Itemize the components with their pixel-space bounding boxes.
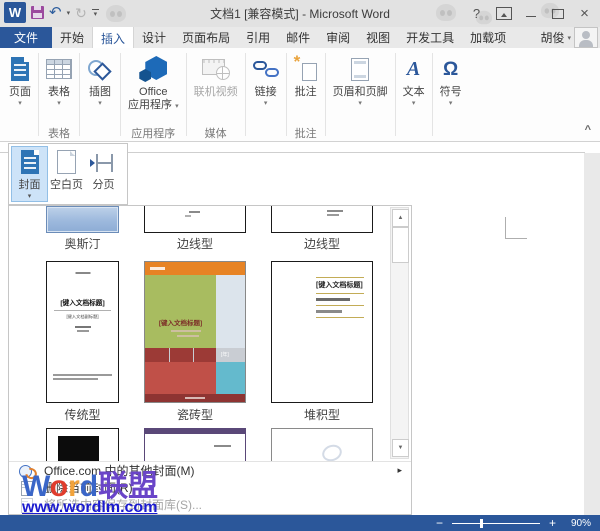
word-window: 文档1 [兼容模式] - Microsoft Word W ↶ ▾ ↻ ▾ ? … [0, 0, 600, 531]
pages-flyout: 封面 ▾ 空白页 分页 [8, 143, 128, 205]
avatar[interactable] [574, 27, 598, 48]
zoom-in-icon[interactable]: + [549, 517, 556, 529]
group-links: 链接 ▾ [246, 48, 286, 141]
table-button[interactable]: 表格 ▾ [42, 51, 76, 109]
menu-item-remove-cover[interactable]: 删除当前封面(R) [9, 479, 411, 496]
group-label-media: 媒体 [205, 125, 227, 141]
user-caret-icon[interactable]: ▾ [567, 34, 571, 42]
links-button[interactable]: 链接 ▾ [249, 51, 283, 109]
menu-item-save-selection: 将所选内容保存到封面库(S)... [9, 496, 411, 513]
status-bar: − + 90% [0, 515, 600, 531]
chevron-down-icon: ▾ [57, 100, 61, 107]
chevron-down-icon: ▾ [412, 100, 416, 107]
zoom-out-icon[interactable]: − [436, 517, 443, 529]
comment-button[interactable]: 批注 [290, 51, 322, 101]
page-break-button[interactable]: 分页 [85, 146, 122, 202]
tab-insert[interactable]: 插入 [92, 27, 134, 49]
group-label-comments: 批注 [295, 125, 317, 141]
qat-customize-icon[interactable]: ▾ [92, 9, 99, 17]
group-symbols: Ω 符号 ▾ [433, 48, 469, 141]
chevron-down-icon: ▾ [264, 100, 268, 107]
group-label-apps: 应用程序 [131, 125, 175, 141]
group-media: 联机视频 媒体 [187, 48, 245, 141]
cover-gallery-list: 奥斯汀 边线型 边线型 [键入文档标题] [键入文档副标题] [键入文档标题] … [9, 206, 411, 461]
account-area: 胡俊 ▾ [540, 27, 600, 48]
menu-item-more-covers[interactable]: Office.com 中的其他封面(M) ▸ [9, 462, 411, 479]
shapes-icon [87, 58, 113, 80]
cover-thumbnail-stacked[interactable]: [键入文档标题] [271, 261, 373, 403]
header-footer-icon [351, 58, 369, 81]
omega-icon: Ω [443, 63, 458, 76]
help-icon[interactable]: ? [463, 3, 490, 25]
cover-gallery-dropdown: 奥斯汀 边线型 边线型 [键入文档标题] [键入文档副标题] [键入文档标题] … [8, 205, 412, 515]
header-footer-button[interactable]: 页眉和页脚 ▾ [329, 51, 392, 109]
minimize-icon[interactable] [517, 3, 544, 25]
chevron-down-icon: ▾ [98, 100, 102, 107]
cover-thumbnail-sideline-2[interactable] [271, 206, 373, 233]
online-video-button[interactable]: 联机视频 [190, 51, 242, 101]
group-header-footer: 页眉和页脚 ▾ [326, 48, 395, 141]
quick-access-toolbar: W ↶ ▾ ↻ ▾ [4, 2, 99, 23]
close-icon[interactable]: × [571, 3, 598, 25]
tab-page-layout[interactable]: 页面布局 [174, 27, 238, 48]
blank-page-button[interactable]: 空白页 [48, 146, 85, 202]
pages-button[interactable]: 页面 ▾ [5, 51, 35, 109]
chevron-down-icon: ▾ [175, 103, 179, 110]
page-edge-shade [584, 153, 600, 515]
text-button[interactable]: A 文本 ▾ [399, 51, 429, 109]
ribbon: 页面 ▾ 表格 ▾ 表格 插图 ▾ [0, 48, 600, 142]
zoom-slider[interactable] [452, 523, 540, 524]
chevron-down-icon: ▾ [449, 100, 453, 107]
save-icon[interactable] [31, 6, 44, 19]
chevron-down-icon: ▾ [18, 100, 22, 107]
group-illustrations: 插图 ▾ [80, 48, 120, 141]
tab-developer[interactable]: 开发工具 [398, 27, 462, 48]
cover-label: 瓷砖型 [129, 406, 261, 423]
tab-mailings[interactable]: 邮件 [278, 27, 318, 48]
tab-references[interactable]: 引用 [238, 27, 278, 48]
group-pages: 页面 ▾ [2, 48, 38, 141]
cover-thumbnail-traditional[interactable]: [键入文档标题] [键入文档副标题] [46, 261, 119, 403]
cover-thumbnail-austin[interactable] [46, 206, 119, 233]
cube-icon [139, 56, 167, 82]
tab-addins[interactable]: 加载项 [462, 27, 514, 48]
group-comments: 批注 批注 [287, 48, 325, 141]
cover-label: 边线型 [129, 235, 261, 252]
group-table: 表格 ▾ 表格 [39, 48, 79, 141]
symbol-button[interactable]: Ω 符号 ▾ [436, 51, 466, 109]
undo-caret-icon[interactable]: ▾ [67, 9, 71, 17]
undo-icon[interactable]: ↶ [49, 5, 62, 20]
office-com-icon [19, 464, 35, 478]
tab-file[interactable]: 文件 [0, 27, 52, 48]
chain-icon [253, 59, 279, 79]
ribbon-display-options-icon[interactable] [490, 3, 517, 25]
remove-cover-icon [19, 481, 35, 495]
scrollbar-thumb[interactable] [392, 227, 409, 263]
tab-view[interactable]: 视图 [358, 27, 398, 48]
new-comment-icon [294, 57, 318, 81]
tab-home[interactable]: 开始 [52, 27, 92, 48]
office-apps-button[interactable]: Office 应用程序 ▾ [124, 51, 183, 114]
word-app-icon[interactable]: W [4, 2, 26, 23]
redo-icon: ↻ [75, 6, 87, 20]
table-icon [46, 59, 72, 79]
save-selection-icon [19, 498, 35, 512]
zoom-level[interactable]: 90% [565, 518, 591, 529]
group-label-table: 表格 [48, 125, 70, 141]
text-a-icon: A [407, 63, 420, 76]
cover-thumbnail-row3-1[interactable] [46, 428, 119, 461]
text-boundary-corner [505, 217, 527, 239]
cover-page-icon [21, 150, 39, 174]
page-break-icon [92, 152, 116, 174]
gallery-scrollbar[interactable]: ▲ ▼ [390, 207, 409, 459]
cover-label: 传统型 [29, 406, 136, 423]
cover-thumbnail-sideline-1[interactable] [144, 206, 246, 233]
cover-thumbnail-row3-2[interactable] [144, 428, 246, 461]
chevron-down-icon: ▾ [28, 194, 32, 200]
restore-icon[interactable] [544, 3, 571, 25]
ribbon-tab-row: 文件 开始 插入 设计 页面布局 引用 邮件 审阅 视图 开发工具 加载项 胡俊… [0, 27, 600, 49]
page-icon [11, 57, 29, 81]
window-controls: ? × [463, 0, 598, 27]
title-bar: 文档1 [兼容模式] - Microsoft Word W ↶ ▾ ↻ ▾ ? … [0, 0, 600, 27]
chevron-down-icon: ▾ [358, 100, 362, 107]
submenu-arrow-icon: ▸ [397, 465, 402, 476]
zoom-slider-handle[interactable] [480, 519, 483, 528]
user-name[interactable]: 胡俊 [540, 29, 564, 46]
cover-thumbnail-row3-3[interactable] [271, 428, 373, 461]
tab-review[interactable]: 审阅 [318, 27, 358, 48]
cover-label: 堆积型 [256, 406, 388, 423]
video-icon [202, 58, 230, 80]
gallery-menu: Office.com 中的其他封面(M) ▸ 删除当前封面(R) 将所选内容保存… [9, 461, 411, 513]
illustrations-button[interactable]: 插图 ▾ [83, 51, 117, 109]
cover-label: 边线型 [256, 235, 388, 252]
cover-page-button[interactable]: 封面 ▾ [11, 146, 48, 202]
scroll-down-icon[interactable]: ▼ [392, 439, 409, 457]
blank-page-icon [57, 150, 76, 174]
scroll-up-icon[interactable]: ▲ [392, 209, 409, 227]
group-apps: Office 应用程序 ▾ 应用程序 [121, 48, 186, 141]
cover-thumbnail-tiles[interactable]: [键入文档标题] [年] [144, 261, 246, 403]
collapse-ribbon-icon[interactable]: ^ [585, 124, 591, 136]
group-text: A 文本 ▾ [396, 48, 432, 141]
tab-design[interactable]: 设计 [134, 27, 174, 48]
cover-label: 奥斯汀 [29, 235, 136, 252]
